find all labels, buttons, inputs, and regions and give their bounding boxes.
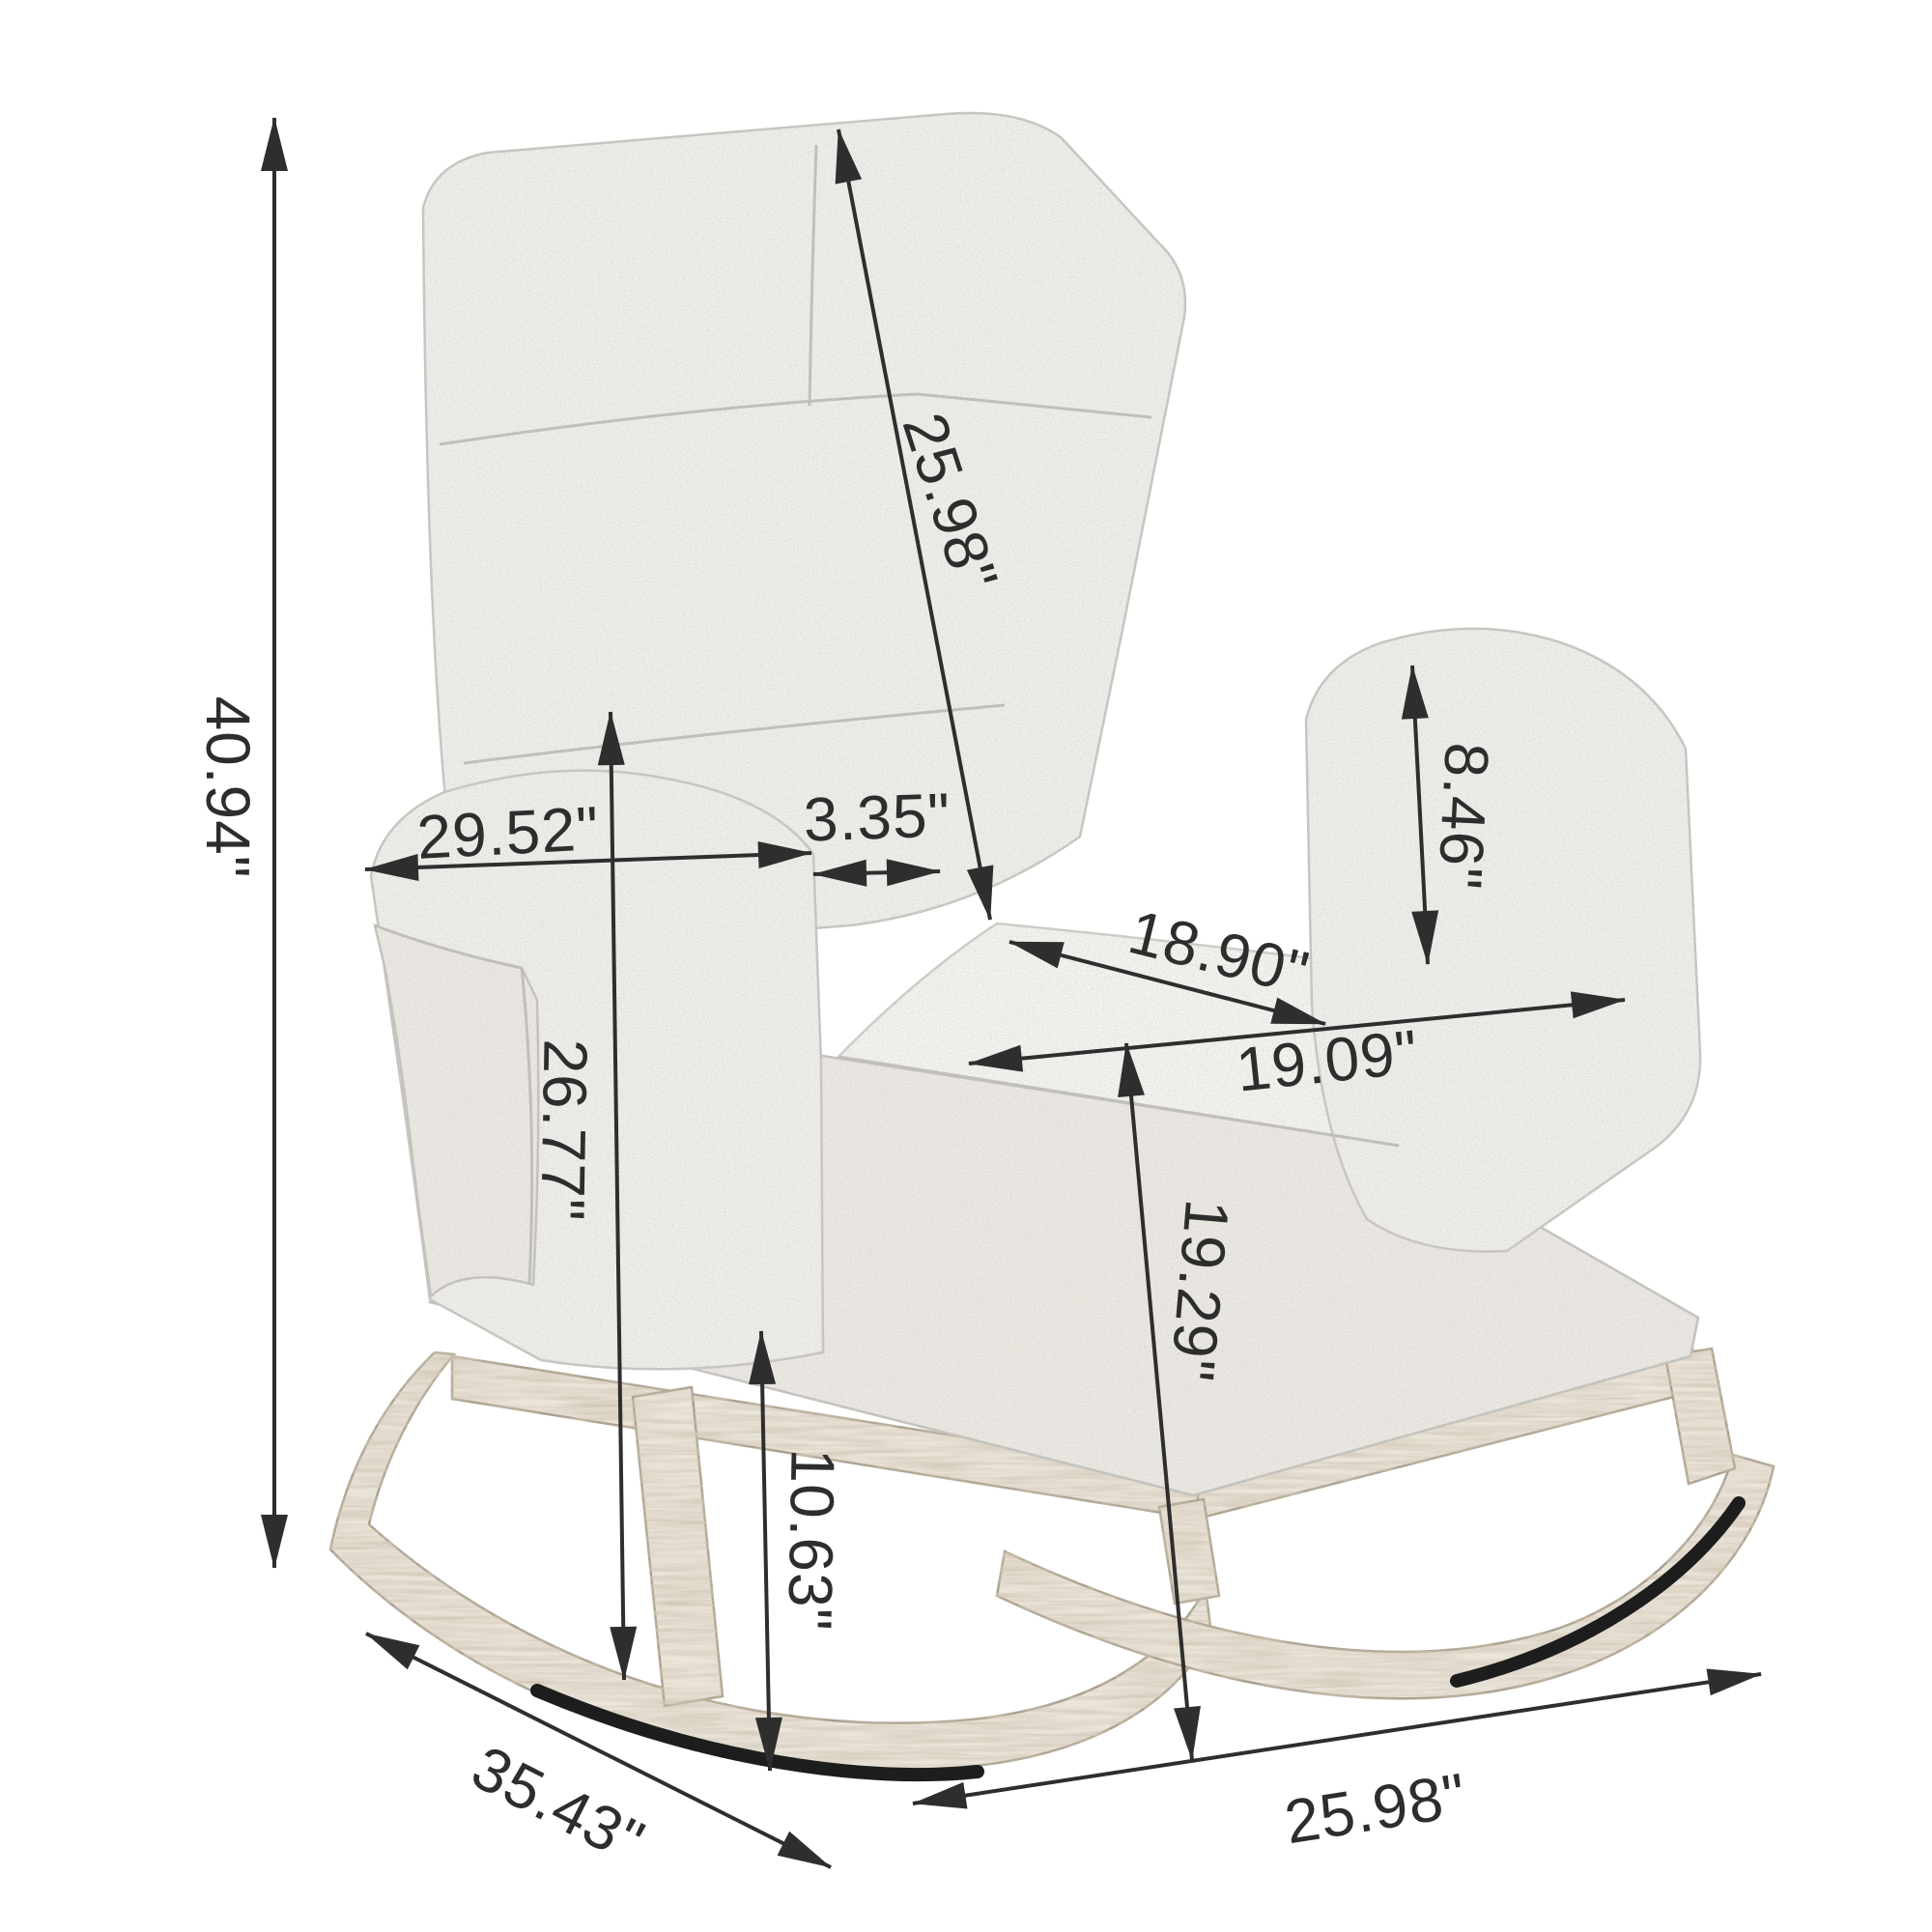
rocking-chair-dimension-diagram: 40.94" 25.98" 29.52" 3.35" 8.46" 18.90" … <box>0 0 1932 1932</box>
dimension-base-height-line <box>761 1331 770 1771</box>
right-armrest <box>1306 629 1700 1252</box>
dimension-base-length: 25.98" <box>913 1674 1761 1857</box>
chair-illustration <box>330 113 1774 1775</box>
dimension-overall-height: 40.94" <box>193 118 274 1568</box>
dimension-overall-width-label: 29.52" <box>415 793 601 872</box>
rear-right-post <box>1665 1349 1735 1484</box>
dimension-backrest-thickness-label: 3.35" <box>803 780 952 854</box>
dimension-armrest-above-seat-label: 8.46" <box>1425 741 1502 892</box>
diagram-canvas: 40.94" 25.98" 29.52" 3.35" 8.46" 18.90" … <box>0 0 1932 1932</box>
dimension-base-length-label: 25.98" <box>1280 1760 1471 1858</box>
dimension-overall-depth-label: 35.43" <box>462 1732 656 1877</box>
dimension-armrest-height-label: 26.77" <box>527 1038 600 1222</box>
dimension-overall-height-label: 40.94" <box>193 696 263 879</box>
dimension-base-height-label: 10.63" <box>775 1448 847 1632</box>
side-pocket <box>375 925 538 1296</box>
